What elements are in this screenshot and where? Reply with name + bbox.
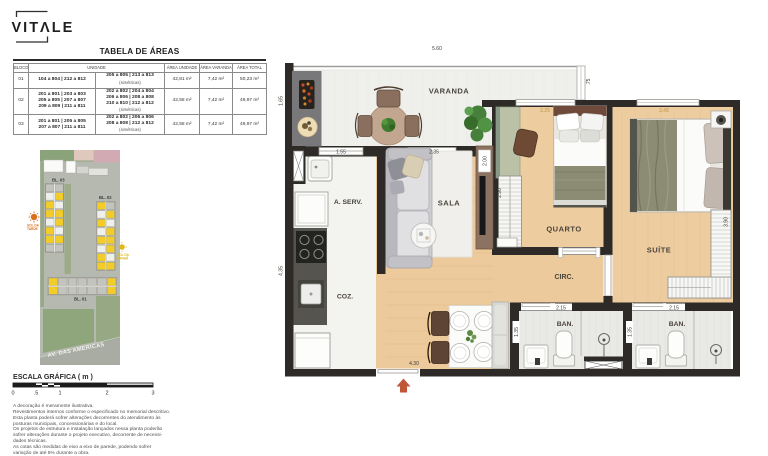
svg-text:BL. 03: BL. 03 <box>52 178 65 183</box>
svg-text:1.35: 1.35 <box>627 327 633 337</box>
svg-text:2.45: 2.45 <box>659 108 669 114</box>
svg-text:CIRC.: CIRC. <box>554 274 573 281</box>
svg-text:1: 1 <box>58 391 61 397</box>
svg-text:1.35: 1.35 <box>514 327 520 337</box>
svg-text:SALA: SALA <box>438 199 461 208</box>
svg-text:MANHÃ: MANHÃ <box>117 256 130 261</box>
svg-text:2.90: 2.90 <box>497 188 503 198</box>
svg-text:2.15: 2.15 <box>669 306 679 312</box>
svg-text:BAN.: BAN. <box>669 321 686 328</box>
svg-text:5.60: 5.60 <box>432 46 442 52</box>
svg-text:0: 0 <box>11 391 14 397</box>
svg-text:2.00: 2.00 <box>483 156 489 166</box>
svg-text:2.25: 2.25 <box>540 108 550 114</box>
svg-text:BL. 02: BL. 02 <box>99 195 112 200</box>
svg-text:1.55: 1.55 <box>336 150 346 156</box>
svg-text:2.35: 2.35 <box>429 150 439 156</box>
svg-text:1.65: 1.65 <box>279 96 285 106</box>
svg-text:.5: .5 <box>34 391 39 397</box>
svg-text:BAN.: BAN. <box>557 321 574 328</box>
svg-text:SUÍTE: SUÍTE <box>647 246 672 255</box>
svg-text:2.15: 2.15 <box>556 306 566 312</box>
svg-text:COZ.: COZ. <box>337 294 353 301</box>
svg-text:VITΛLE: VITΛLE <box>12 20 75 36</box>
svg-text:4.35: 4.35 <box>279 266 285 276</box>
svg-text:4.30: 4.30 <box>409 361 419 367</box>
svg-text:2: 2 <box>105 391 108 397</box>
svg-text:BL. 01: BL. 01 <box>74 297 87 302</box>
svg-text:3.90: 3.90 <box>724 217 730 227</box>
svg-text:VARANDA: VARANDA <box>429 87 470 96</box>
svg-text:TARDE: TARDE <box>27 227 38 231</box>
svg-text:3: 3 <box>151 391 154 397</box>
svg-text:A. SERV.: A. SERV. <box>334 199 362 206</box>
svg-text:QUARTO: QUARTO <box>546 225 581 234</box>
svg-text:.75: .75 <box>586 78 592 85</box>
